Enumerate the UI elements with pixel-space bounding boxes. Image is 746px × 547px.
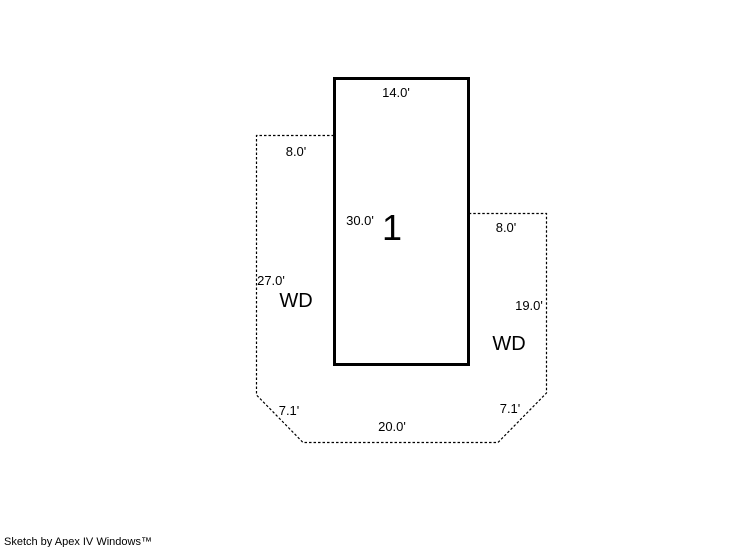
- dim-building-top: 14.0': [382, 85, 410, 100]
- area-number-label: 1: [382, 207, 402, 248]
- dim-deck-right-side: 19.0': [515, 298, 543, 313]
- dim-deck-left-top: 8.0': [286, 144, 307, 159]
- sketch-canvas: 14.0' 8.0' 30.0' 8.0' 27.0' 19.0' 7.1' 2…: [0, 0, 746, 547]
- dim-deck-left-side: 27.0': [257, 273, 285, 288]
- dim-deck-left-diagonal: 7.1': [279, 403, 300, 418]
- deck-label-right: WD: [492, 333, 525, 355]
- floorplan-sketch: 14.0' 8.0' 30.0' 8.0' 27.0' 19.0' 7.1' 2…: [0, 0, 746, 547]
- dim-building-left: 30.0': [346, 213, 374, 228]
- deck-label-left: WD: [279, 290, 312, 312]
- footer-branding: Sketch by Apex IV Windows™: [4, 536, 152, 547]
- dim-deck-right-top: 8.0': [496, 220, 517, 235]
- dim-deck-right-diagonal: 7.1': [500, 401, 521, 416]
- dim-deck-bottom: 20.0': [378, 419, 406, 434]
